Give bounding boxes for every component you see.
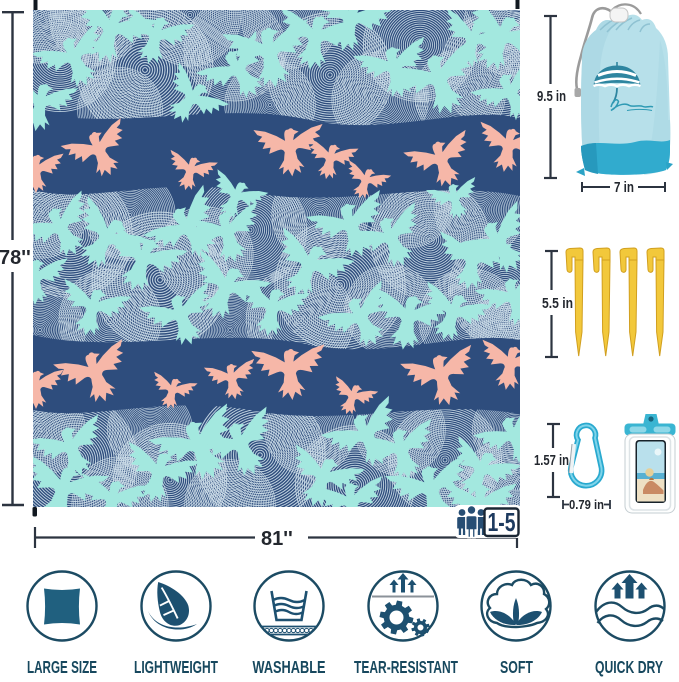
svg-text:QUICK DRY: QUICK DRY <box>595 657 663 677</box>
svg-text:LIGHTWEIGHT: LIGHTWEIGHT <box>134 657 218 677</box>
svg-text:WASHABLE: WASHABLE <box>253 657 326 677</box>
svg-text:1.57 in: 1.57 in <box>534 453 569 469</box>
svg-text:5.5 in: 5.5 in <box>542 296 573 312</box>
svg-text:SOFT: SOFT <box>500 657 533 677</box>
svg-text:9.5 in: 9.5 in <box>537 89 566 105</box>
svg-text:1-5: 1-5 <box>488 507 516 537</box>
svg-text:LARGE SIZE: LARGE SIZE <box>27 657 97 677</box>
svg-text:0.79 in: 0.79 in <box>569 497 604 512</box>
svg-text:78'': 78'' <box>0 247 31 269</box>
svg-text:TEAR-RESISTANT: TEAR-RESISTANT <box>354 657 458 677</box>
svg-text:7 in: 7 in <box>614 180 634 196</box>
svg-text:81'': 81'' <box>261 528 293 550</box>
